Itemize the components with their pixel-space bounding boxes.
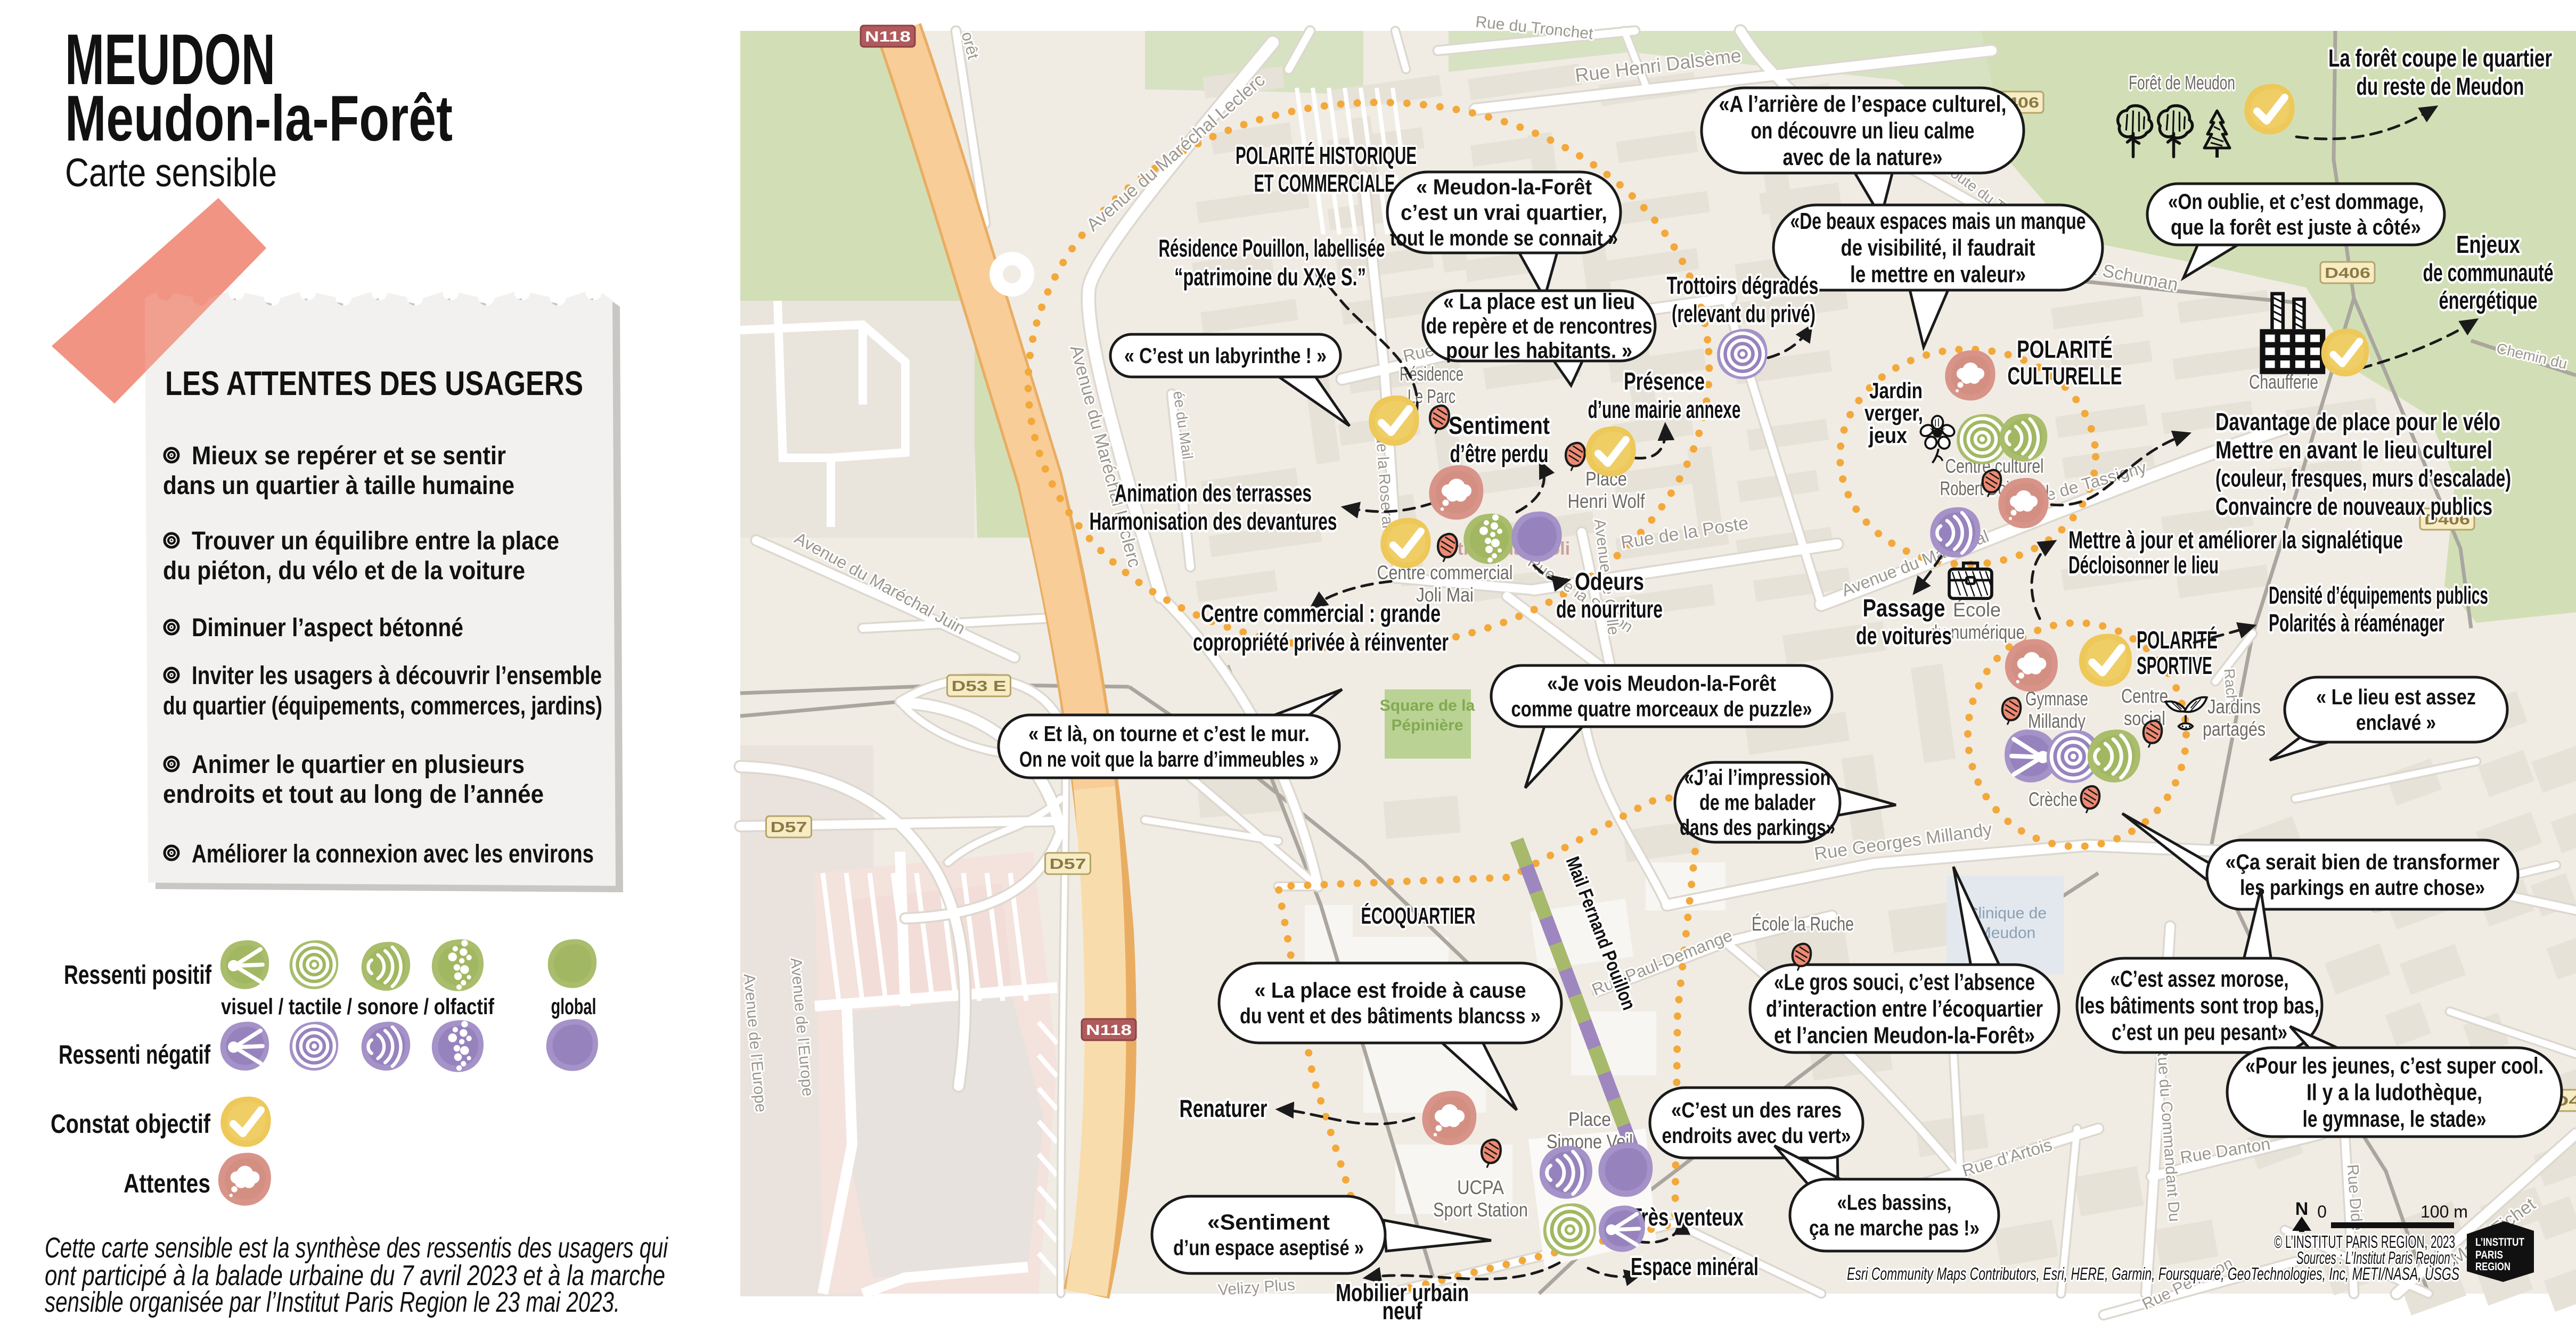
svg-text:Polarités à réaménager: Polarités à réaménager (2269, 609, 2444, 637)
svg-text:endroits avec du vert»: endroits avec du vert» (1662, 1123, 1851, 1148)
svg-text:énergétique: énergétique (2439, 286, 2538, 314)
svg-text:c’est un peu pesant»: c’est un peu pesant» (2112, 1019, 2287, 1045)
svg-text:Forêt de Meudon: Forêt de Meudon (2129, 72, 2235, 94)
svg-text:Square de la: Square de la (1380, 697, 1475, 714)
svg-text:copropriété privée à réinvente: copropriété privée à réinventer (1193, 628, 1449, 656)
svg-text:Ressenti négatif: Ressenti négatif (59, 1040, 210, 1070)
svg-text:Chaufferie: Chaufferie (2249, 371, 2318, 393)
svg-text:d’une mairie annexe: d’une mairie annexe (1588, 396, 1741, 423)
svg-text:neuf: neuf (1383, 1297, 1423, 1321)
svg-text:«Ça serait bien de transformer: «Ça serait bien de transformer (2226, 850, 2500, 874)
svg-text:«A l’arrière de l’espace cultu: «A l’arrière de l’espace culturel, (1719, 91, 2007, 117)
svg-text:Passage: Passage (1863, 594, 1945, 622)
svg-text:«Je vois Meudon-la-Forêt: «Je vois Meudon-la-Forêt (1547, 671, 1776, 695)
svg-text:du reste de Meudon: du reste de Meudon (2357, 72, 2524, 100)
svg-text:Présence: Présence (1624, 367, 1705, 395)
svg-text:Mettre à jour et améliorer la: Mettre à jour et améliorer la signalétiq… (2068, 526, 2403, 554)
svg-text:Place: Place (1568, 1108, 1611, 1130)
svg-text:Inviter les usagers à découvri: Inviter les usagers à découvrir l’ensemb… (192, 662, 602, 690)
svg-text:D57: D57 (1050, 856, 1086, 872)
svg-text:de me balader: de me balader (1699, 790, 1816, 815)
svg-text:«De beaux espaces mais un manq: «De beaux espaces mais un manque (1790, 208, 2086, 234)
svg-text:Millandy: Millandy (2028, 710, 2086, 732)
svg-text:de voitures: de voitures (1856, 622, 1952, 649)
svg-text:Esri Community Maps Contributo: Esri Community Maps Contributors, Esri, … (1847, 1264, 2459, 1284)
svg-text:Décloisonner le lieu: Décloisonner le lieu (2068, 551, 2219, 579)
svg-text:Densité d’équipements publics: Densité d’équipements publics (2269, 581, 2488, 609)
svg-text:CULTURELLE: CULTURELLE (2008, 362, 2122, 390)
svg-text:Odeurs: Odeurs (1575, 568, 1644, 595)
svg-text:que la forêt est juste à côté»: que la forêt est juste à côté» (2171, 215, 2421, 239)
svg-text:Crèche: Crèche (2029, 788, 2078, 810)
svg-text:«Les bassins,: «Les bassins, (1837, 1190, 1952, 1214)
svg-text:PARIS: PARIS (2475, 1249, 2503, 1261)
svg-text:Trottoirs dégradés: Trottoirs dégradés (1667, 272, 1819, 299)
svg-text:Ressenti positif: Ressenti positif (64, 960, 211, 990)
svg-text:Enjeux: Enjeux (2456, 231, 2520, 258)
svg-text:du vent et des bâtiments blanc: du vent et des bâtiments blancss » (1240, 1004, 1541, 1028)
svg-text:(couleur, fresques, murs d’esc: (couleur, fresques, murs d’escalade) (2215, 464, 2511, 492)
svg-text:UCPA: UCPA (1457, 1177, 1504, 1198)
svg-text:partagés: partagés (2203, 718, 2266, 740)
svg-text:tout le monde se connait »: tout le monde se connait » (1390, 226, 1618, 250)
svg-text:d’interaction entre l’écoquart: d’interaction entre l’écoquartier (1766, 996, 2043, 1022)
svg-text:N118: N118 (1086, 1022, 1132, 1038)
svg-text:Pépinière: Pépinière (1391, 717, 1463, 734)
svg-text:POLARITÉ: POLARITÉ (2017, 335, 2113, 363)
svg-text:Animation des terrasses: Animation des terrasses (1115, 479, 1312, 507)
svg-text:Cette carte sensible est la sy: Cette carte sensible est la synthèse des… (45, 1232, 668, 1264)
svg-text:La forêt coupe le quartier: La forêt coupe le quartier (2328, 44, 2552, 72)
svg-text:École: École (1953, 599, 2001, 621)
svg-text:Résidence Pouillon, labellisée: Résidence Pouillon, labellisée (1159, 234, 1385, 262)
svg-text:100 m: 100 m (2420, 1202, 2468, 1221)
svg-text:visuel / tactile / sonore / ol: visuel / tactile / sonore / olfactif (221, 994, 495, 1019)
svg-text:Harmonisation des devantures: Harmonisation des devantures (1090, 507, 1337, 535)
svg-text:«Sentiment: «Sentiment (1207, 1210, 1330, 1234)
svg-text:Constat objectif: Constat objectif (51, 1109, 210, 1139)
svg-text:« Meudon-la-Forêt: « Meudon-la-Forêt (1416, 175, 1592, 199)
svg-text:« La place est froide à cause: « La place est froide à cause (1255, 978, 1526, 1002)
svg-text:Mettre en avant le lieu cultur: Mettre en avant le lieu culturel (2215, 436, 2492, 464)
svg-text:Centre: Centre (2121, 685, 2168, 707)
svg-text:Davantage de place pour le vél: Davantage de place pour le vélo (2215, 408, 2500, 435)
svg-text:de visibilité, il faudrait: de visibilité, il faudrait (1841, 235, 2035, 261)
svg-text:de repère et de rencontres: de repère et de rencontres (1426, 313, 1653, 338)
svg-text:Espace minéral: Espace minéral (1631, 1253, 1759, 1280)
svg-text:Meudon-la-Forêt: Meudon-la-Forêt (65, 82, 453, 154)
svg-text:0: 0 (2317, 1202, 2327, 1221)
svg-text:global: global (551, 994, 596, 1019)
svg-text:c’est un vrai quartier,: c’est un vrai quartier, (1401, 200, 1607, 225)
svg-text:Animer le quartier en plusieur: Animer le quartier en plusieurs (192, 751, 525, 779)
svg-text:Trouver un équilibre entre la: Trouver un équilibre entre la place (192, 527, 559, 555)
svg-text:«Le gros souci, c’est l’absenc: «Le gros souci, c’est l’absence (1774, 969, 2035, 995)
svg-text:Très venteux: Très venteux (1631, 1203, 1744, 1231)
svg-text:D57: D57 (771, 819, 807, 835)
svg-text:du piéton, du vélo et de la vo: du piéton, du vélo et de la voiture (163, 557, 525, 585)
svg-text:sensible organisée par l’Insti: sensible organisée par l’Institut Paris … (45, 1286, 620, 1318)
svg-text:enclavé »: enclavé » (2356, 710, 2436, 735)
svg-text:«On oublie, et c’est dommage,: «On oublie, et c’est dommage, (2168, 189, 2424, 213)
svg-text:“patrimoine du XXe S.”: “patrimoine du XXe S.” (1174, 263, 1366, 291)
svg-text:« Et là, on tourne et c’est le: « Et là, on tourne et c’est le mur. (1028, 721, 1310, 746)
svg-text:jeux: jeux (1868, 423, 1907, 448)
svg-text:Renaturer: Renaturer (1180, 1095, 1267, 1122)
svg-text:Jardin: Jardin (1869, 378, 1923, 403)
svg-text:verger,: verger, (1864, 400, 1923, 425)
svg-text:«Pour les jeunes, c’est super: «Pour les jeunes, c’est super cool. (2245, 1052, 2544, 1079)
svg-text:les bâtiments sont trop bas,: les bâtiments sont trop bas, (2080, 992, 2319, 1018)
svg-text:On ne voit que la barre d’imme: On ne voit que la barre d’immeubles » (1019, 747, 1319, 771)
svg-text:«C’est assez morose,: «C’est assez morose, (2111, 966, 2289, 992)
svg-text:comme quatre morceaux de puzzl: comme quatre morceaux de puzzle» (1511, 696, 1812, 721)
svg-text:les parkings en autre chose»: les parkings en autre chose» (2240, 875, 2485, 900)
svg-text:endroits et tout au long de l’: endroits et tout au long de l’année (163, 780, 544, 809)
svg-text:ET COMMERCIALE: ET COMMERCIALE (1254, 169, 1395, 197)
svg-text:D406: D406 (2325, 265, 2370, 281)
svg-text:« C’est un labyrinthe ! »: « C’est un labyrinthe ! » (1124, 343, 1327, 368)
svg-text:et l’ancien Meudon-la-Forêt»: et l’ancien Meudon-la-Forêt» (1774, 1022, 2035, 1048)
svg-text:D53 E: D53 E (952, 678, 1007, 694)
svg-text:le gymnase, le stade»: le gymnase, le stade» (2303, 1106, 2487, 1132)
svg-text:du quartier (équipements, comm: du quartier (équipements, commerces, jar… (163, 692, 602, 720)
svg-text:de communauté: de communauté (2423, 259, 2554, 286)
svg-text:Carte sensible: Carte sensible (65, 150, 277, 195)
svg-text:Diminuer l’aspect bétonné: Diminuer l’aspect bétonné (192, 614, 463, 642)
svg-text:Jardins: Jardins (2207, 696, 2261, 718)
svg-text:Sport Station: Sport Station (1433, 1199, 1528, 1221)
svg-text:dans un quartier à taille huma: dans un quartier à taille humaine (163, 472, 514, 500)
svg-text:«J’ai l’impression: «J’ai l’impression (1684, 764, 1831, 790)
svg-text:« Le lieu est assez: « Le lieu est assez (2316, 685, 2476, 709)
svg-text:LES ATTENTES DES USAGERS: LES ATTENTES DES USAGERS (165, 364, 583, 402)
svg-text:L’INSTITUT: L’INSTITUT (2475, 1236, 2524, 1248)
svg-text:POLARITÉ HISTORIQUE: POLARITÉ HISTORIQUE (1236, 142, 1417, 169)
svg-text:dans des parkings»: dans des parkings» (1680, 815, 1835, 840)
svg-text:de nourriture: de nourriture (1556, 595, 1663, 623)
svg-text:«C’est un des rares: «C’est un des rares (1671, 1098, 1842, 1122)
svg-text:(relevant du privé): (relevant du privé) (1672, 300, 1816, 327)
svg-text:Améliorer la connexion avec le: Améliorer la connexion avec les environs (192, 840, 594, 868)
svg-text:ça ne marche pas !»: ça ne marche pas !» (1809, 1215, 1980, 1240)
svg-text:N118: N118 (865, 28, 911, 45)
svg-text:le mettre en valeur»: le mettre en valeur» (1850, 261, 2026, 287)
svg-text:SPORTIVE: SPORTIVE (2137, 652, 2212, 679)
svg-text:Convaincre de nouveaux publics: Convaincre de nouveaux publics (2215, 492, 2492, 520)
svg-text:N: N (2295, 1199, 2309, 1219)
svg-text:ÉCOQUARTIER: ÉCOQUARTIER (1361, 902, 1476, 929)
svg-text:Attentes: Attentes (124, 1169, 210, 1198)
svg-text:avec de la nature»: avec de la nature» (1783, 144, 1943, 170)
svg-text:Henri Wolf: Henri Wolf (1568, 490, 1646, 512)
svg-text:d’être perdu: d’être perdu (1450, 440, 1549, 467)
svg-text:Sentiment: Sentiment (1449, 412, 1550, 439)
svg-text:d’un espace aseptisé »: d’un espace aseptisé » (1173, 1235, 1364, 1260)
svg-text:REGION: REGION (2475, 1261, 2510, 1273)
svg-text:Centre commercial : grande: Centre commercial : grande (1201, 599, 1441, 627)
svg-text:pour les habitants. »: pour les habitants. » (1446, 338, 1632, 363)
svg-text:Mieux se repérer et se sentir: Mieux se repérer et se sentir (192, 442, 506, 470)
svg-text:on découvre un lieu calme: on découvre un lieu calme (1751, 118, 1975, 144)
svg-text:« La place est un lieu: « La place est un lieu (1443, 289, 1635, 314)
svg-text:École la Ruche: École la Ruche (1752, 913, 1854, 935)
svg-text:Il y a la ludothèque,: Il y a la ludothèque, (2307, 1079, 2482, 1105)
